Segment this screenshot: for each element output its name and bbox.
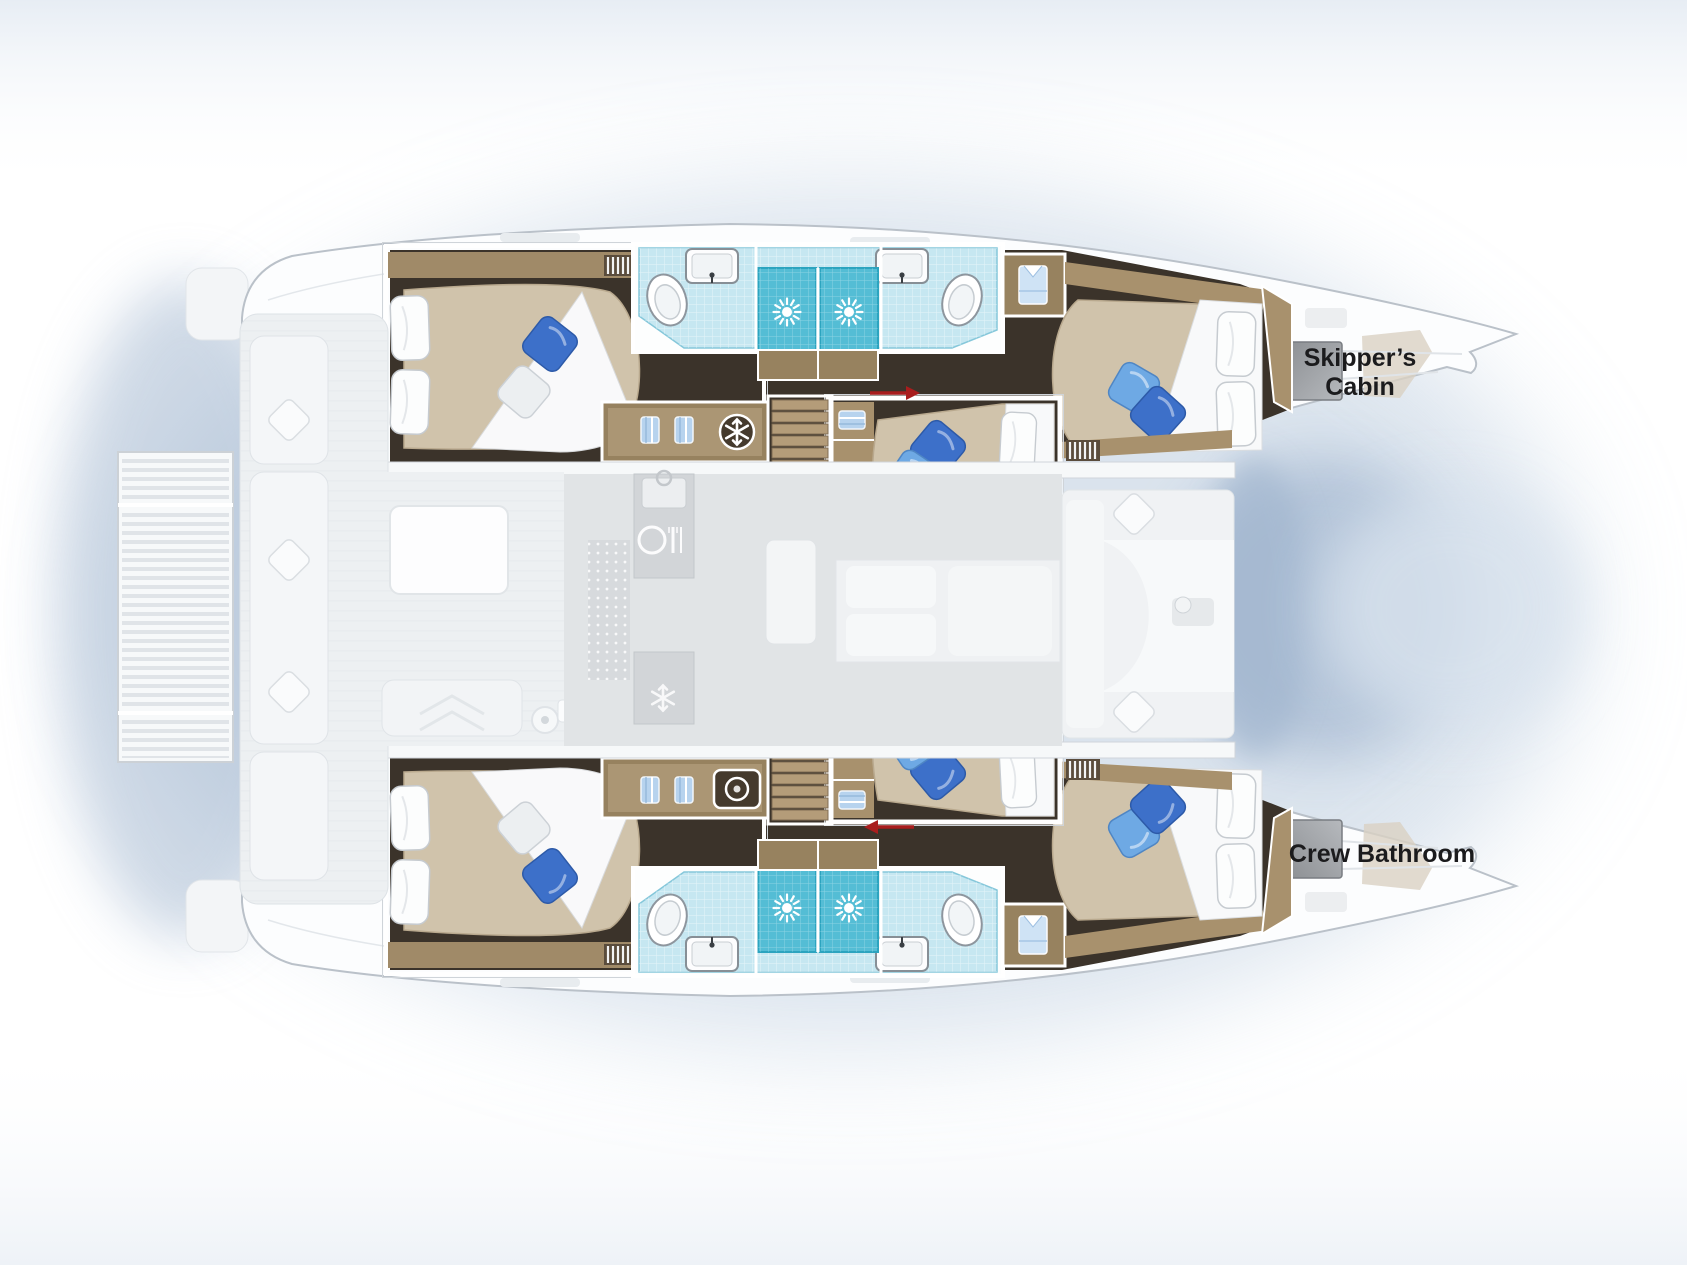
shirt-locker-icon [1019,916,1047,954]
seat-cushion [846,566,936,608]
platform-slats [122,456,229,502]
seat-cushion [948,566,1052,656]
stern-scoop [186,268,248,340]
saloon-cabinet [766,540,816,644]
bed-pillow [390,295,430,360]
forward-cockpit [1062,490,1234,738]
washer-drum [734,786,741,793]
platform-slats [122,716,229,758]
bed-pillow [390,369,430,434]
skippers-cabin-label-line2: Cabin [1325,373,1394,401]
towel-shelf-icon [641,417,659,443]
bottom-haze [0,1040,1687,1265]
towel-shelf-icon [675,417,693,443]
bed-pillow [1216,311,1256,376]
saloon [564,471,1062,746]
trampoline-haze [1320,488,1580,728]
towel-shelf-icon [839,411,865,429]
fwd-cockpit-cushions [1066,500,1104,728]
vent-grille-icon [1066,440,1100,461]
floor-plan-svg: Skipper’s Cabin Crew Bathroom [0,0,1687,1265]
hull-window [500,233,580,242]
cockpit-seat [382,680,522,736]
seat-cushion [846,614,936,656]
bow-hatch-small [1305,308,1347,328]
sink [686,249,738,283]
shirt-locker-icon [1019,266,1047,304]
galley-sink [642,478,686,508]
cockpit-table [390,506,508,594]
platform-slats [122,508,229,710]
skippers-cabin-label-line1: Skipper’s [1304,344,1417,372]
sink [876,249,928,283]
top-haze [0,0,1687,190]
fwd-cockpit-cupholder [1175,597,1191,613]
stern-platform [118,452,233,762]
galley-mat-dots [588,540,630,680]
cockpit-bench [250,752,328,880]
cockpit-winch-center [541,716,549,724]
floor-plan-canvas: Skipper’s Cabin Crew Bathroom [0,0,1687,1265]
crew-bathroom-label: Crew Bathroom [1289,840,1475,868]
